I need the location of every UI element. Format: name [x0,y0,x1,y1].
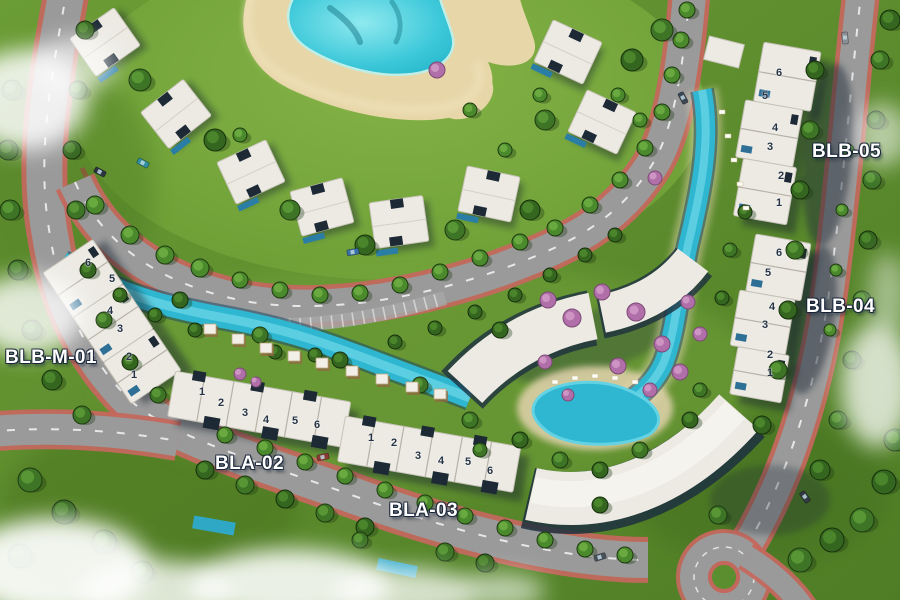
unit-number-blb-m-01-5[interactable]: 5 [109,273,115,285]
unit-number-blb-04-6[interactable]: 6 [776,247,782,259]
unit-number-bla-03-6[interactable]: 6 [487,465,493,477]
unit-number-bla-02-4[interactable]: 4 [263,414,269,426]
building-label-blb-04[interactable]: BLB-04 [806,296,875,318]
unit-number-bla-03-3[interactable]: 3 [415,450,421,462]
unit-number-bla-03-1[interactable]: 1 [368,432,374,444]
unit-number-blb-m-01-3[interactable]: 3 [117,323,123,335]
unit-number-blb-04-2[interactable]: 2 [767,349,773,361]
unit-number-bla-03-5[interactable]: 5 [465,456,471,468]
unit-number-bla-02-1[interactable]: 1 [199,386,205,398]
unit-number-blb-05-6[interactable]: 6 [776,67,782,79]
unit-number-bla-02-5[interactable]: 5 [292,415,298,427]
building-label-blb-m-01[interactable]: BLB-M-01 [5,347,97,369]
building-label-blb-05[interactable]: BLB-05 [812,141,881,163]
unit-number-blb-m-01-1[interactable]: 1 [131,369,137,381]
building-label-bla-03[interactable]: BLA-03 [389,500,458,522]
unit-number-bla-03-2[interactable]: 2 [391,437,397,449]
unit-number-bla-02-3[interactable]: 3 [242,407,248,419]
unit-number-bla-03-4[interactable]: 4 [438,455,444,467]
unit-number-blb-05-2[interactable]: 2 [778,170,784,182]
unit-number-bla-02-2[interactable]: 2 [218,397,224,409]
unit-number-blb-05-5[interactable]: 5 [762,90,768,102]
unit-number-blb-05-3[interactable]: 3 [767,141,773,153]
unit-number-blb-04-4[interactable]: 4 [769,301,775,313]
unit-number-blb-04-1[interactable]: 1 [767,367,773,379]
unit-number-blb-m-01-4[interactable]: 4 [107,305,113,317]
unit-number-blb-m-01-6[interactable]: 6 [85,257,91,269]
unit-number-blb-m-01-2[interactable]: 2 [126,351,132,363]
unit-number-blb-04-3[interactable]: 3 [762,319,768,331]
unit-number-blb-05-1[interactable]: 1 [776,197,782,209]
unit-number-blb-04-5[interactable]: 5 [765,267,771,279]
unit-number-bla-02-6[interactable]: 6 [314,419,320,431]
building-label-bla-02[interactable]: BLA-02 [215,453,284,475]
masterplan-aerial-render: 654321654321654321123456123456 BLB-05 BL… [0,0,900,600]
unit-number-blb-05-4[interactable]: 4 [772,122,778,134]
